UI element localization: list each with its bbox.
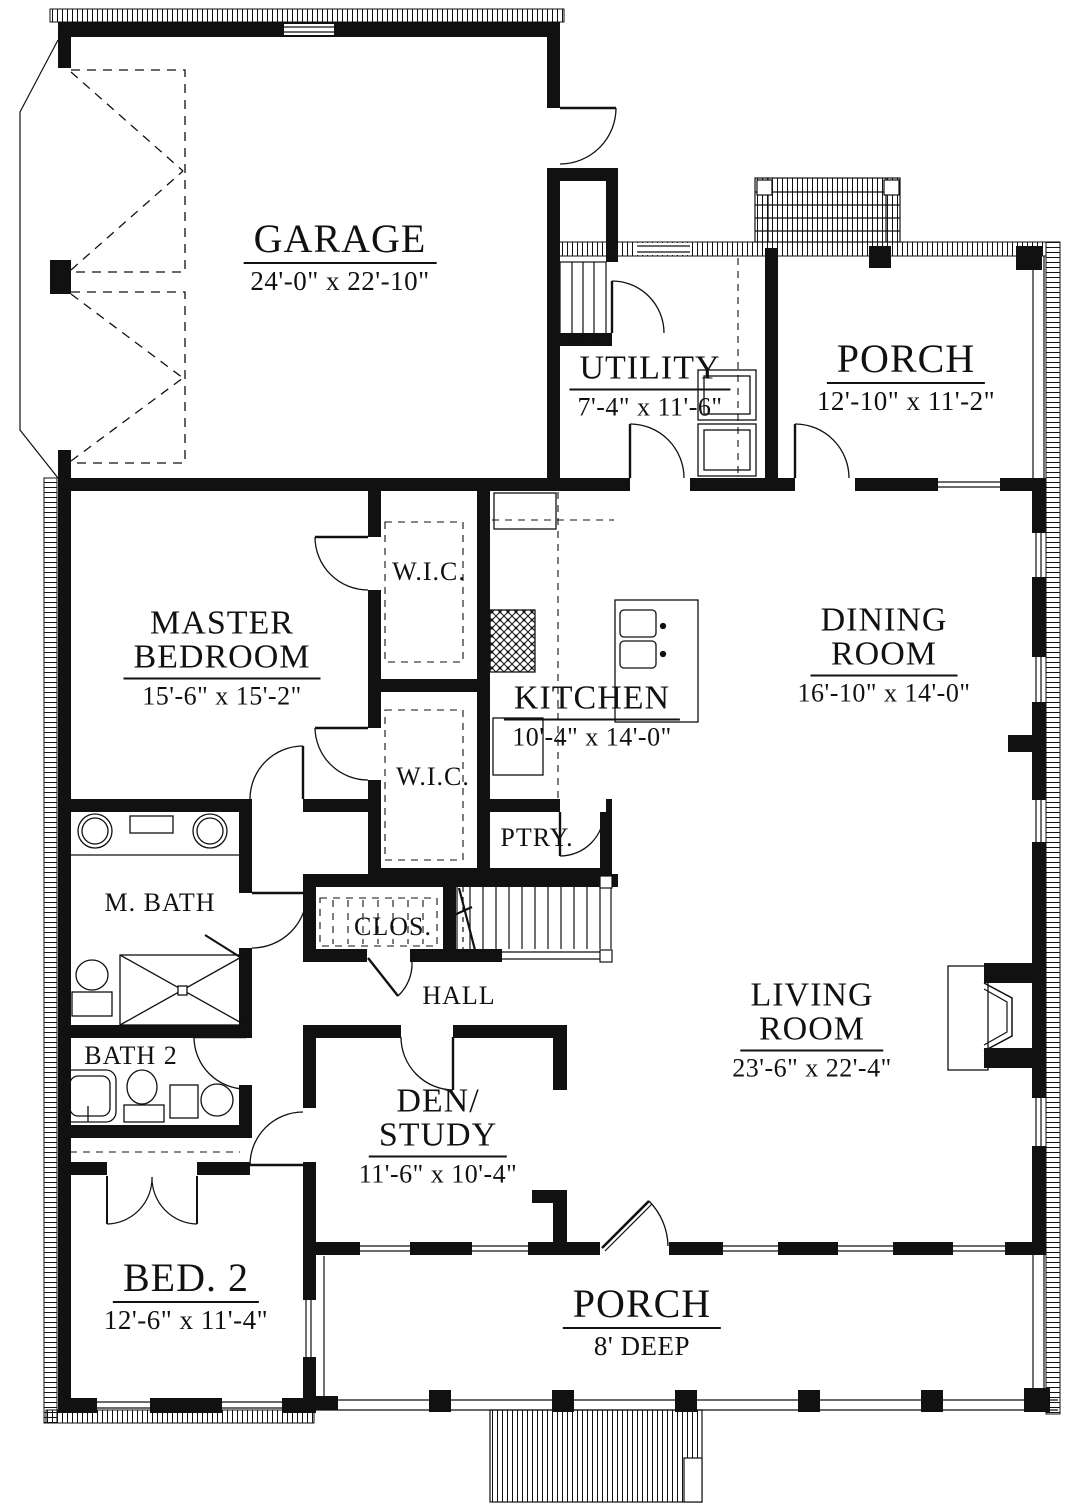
room-dims: 12'-10" x 11'-2" [817, 388, 995, 415]
garage-door-panels [71, 70, 185, 463]
room-name: STUDY [379, 1119, 497, 1153]
room-name: KITCHEN [514, 682, 670, 716]
room-name: UTILITY [579, 352, 720, 386]
room-label-garage: GARAGE 24'-0" x 22'-10" [244, 219, 437, 295]
master-bath-fixtures [62, 814, 245, 1025]
room-name: BED. 2 [123, 1258, 249, 1298]
fireplace-icon [948, 963, 1032, 1070]
room-name: HALL [422, 983, 495, 1009]
room-dims: 7'-4" x 11'-6" [569, 395, 730, 421]
room-dims: 10'-4" x 14'-0" [504, 725, 680, 751]
room-dims: 8' DEEP [563, 1333, 721, 1360]
room-label-kitchen: KITCHEN 10'-4" x 14'-0" [504, 682, 680, 751]
room-label-den: DEN/ STUDY 11'-6" x 10'-4" [359, 1085, 517, 1188]
room-name: MASTER [133, 607, 310, 641]
room-label-bed2: BED. 2 12'-6" x 11'-4" [104, 1258, 268, 1334]
room-name: DINING [821, 604, 948, 638]
room-name: ROOM [821, 638, 948, 672]
room-name: DEN/ [379, 1085, 497, 1119]
sink-basin-icon [620, 610, 656, 637]
bath2-fixtures [63, 1070, 233, 1122]
room-label-dining: DINING ROOM 16'-10" x 14'-0" [798, 604, 971, 707]
room-label-pantry: PTRY. [500, 825, 573, 851]
room-name: W.I.C. [396, 764, 470, 790]
room-dims: 23'-6" x 22'-4" [732, 1056, 891, 1082]
refrigerator-icon [494, 493, 556, 529]
dryer-icon [698, 424, 756, 476]
room-name: CLOS. [354, 914, 432, 940]
room-label-bath2: BATH 2 [84, 1043, 177, 1069]
room-name: M. BATH [104, 890, 215, 916]
stairs-upper [560, 262, 606, 340]
room-dims: 24'-0" x 22'-10" [244, 268, 437, 295]
sink-icon [78, 814, 112, 848]
porch-lower-steps [490, 1410, 702, 1502]
toilet-icon [170, 1085, 198, 1118]
room-name: BATH 2 [84, 1043, 177, 1069]
sink-basin-icon [620, 641, 656, 668]
porch-upper-steps [755, 178, 1044, 478]
room-dims: 11'-6" x 10'-4" [359, 1162, 517, 1188]
room-label-master-bath: M. BATH [104, 890, 215, 916]
room-label-closet: CLOS. [354, 914, 432, 940]
room-dims: 15'-6" x 15'-2" [123, 684, 320, 710]
room-name: BEDROOM [133, 641, 310, 675]
driveway-outline [20, 40, 58, 478]
room-name: PORCH [573, 1284, 711, 1324]
room-name: GARAGE [254, 219, 427, 259]
room-label-wic-lower: W.I.C. [396, 764, 470, 790]
room-label-wic-upper: W.I.C. [392, 559, 466, 585]
room-label-master-bedroom: MASTER BEDROOM 15'-6" x 15'-2" [123, 607, 320, 710]
room-dims: 12'-6" x 11'-4" [104, 1307, 268, 1334]
range-icon [490, 610, 535, 672]
sink-icon [127, 1070, 157, 1104]
room-label-living: LIVING ROOM 23'-6" x 22'-4" [732, 979, 891, 1082]
room-name: W.I.C. [392, 559, 466, 585]
toilet-icon [76, 960, 108, 990]
room-label-utility: UTILITY 7'-4" x 11'-6" [569, 352, 730, 421]
room-name: PTRY. [500, 825, 573, 851]
room-label-porch-upper: PORCH 12'-10" x 11'-2" [817, 339, 995, 415]
room-label-hall: HALL [422, 983, 495, 1009]
room-name: LIVING [750, 979, 873, 1013]
sink-icon [193, 814, 227, 848]
room-name: PORCH [837, 339, 975, 379]
room-label-porch-lower: PORCH 8' DEEP [563, 1284, 721, 1360]
floor-plan-page: GARAGE 24'-0" x 22'-10" UTILITY 7'-4" x … [0, 0, 1074, 1508]
room-name: ROOM [750, 1013, 873, 1047]
room-dims: 16'-10" x 14'-0" [798, 681, 971, 707]
